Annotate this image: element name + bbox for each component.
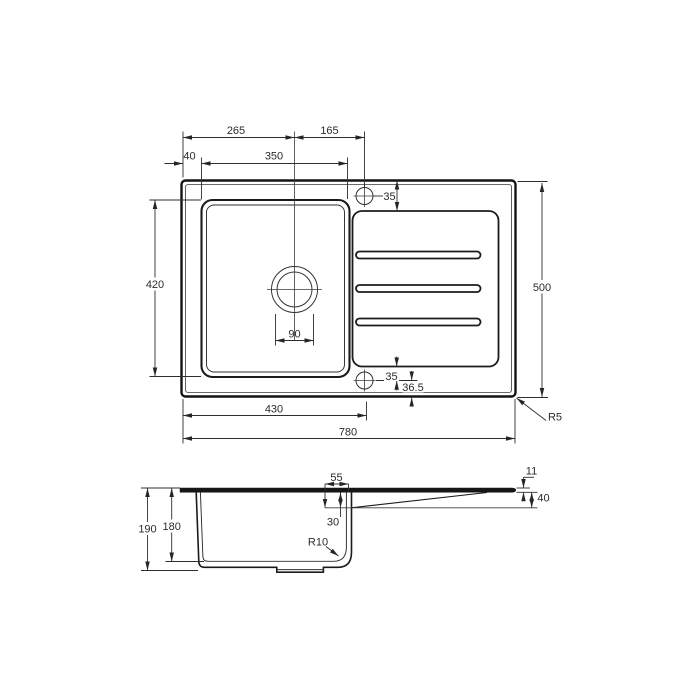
dim-500: 500 (533, 282, 551, 294)
plan-view: 265 165 40 350 35 420 90 35 36.5 430 780… (143, 125, 563, 444)
dim-11: 11 (526, 466, 537, 478)
dim-40-side: 40 (537, 493, 549, 505)
dim-180: 180 (163, 521, 181, 533)
bowl-outline (202, 200, 350, 377)
dim-265: 265 (227, 125, 245, 137)
bowl-section-outer (196, 492, 351, 572)
dim-350: 350 (265, 151, 283, 163)
rim-section-band (180, 488, 516, 492)
dim-35-top: 35 (383, 191, 395, 203)
dim-36-5: 36.5 (402, 382, 423, 394)
bowl-inner-edge (207, 205, 345, 372)
dim-55: 55 (330, 472, 342, 484)
dim-420: 420 (146, 279, 164, 291)
dim-780: 780 (339, 427, 357, 439)
dim-r5: R5 (548, 412, 562, 424)
dim-r10: R10 (308, 537, 328, 549)
dim-90: 90 (288, 329, 300, 341)
bowl-section-inner (200, 492, 346, 561)
sink-technical-drawing: 265 165 40 350 35 420 90 35 36.5 430 780… (0, 0, 700, 700)
drainer-slope (352, 493, 488, 508)
dim-430: 430 (265, 404, 283, 416)
drainer-grooves (356, 252, 481, 326)
tap-hole-bottom (354, 370, 376, 392)
dim-190: 190 (138, 524, 156, 536)
tap-hole-top (354, 185, 376, 207)
dim-35-bottom: 35 (385, 371, 397, 383)
dim-165: 165 (320, 125, 338, 137)
dim-40: 40 (183, 151, 195, 163)
drawing-canvas: 265 165 40 350 35 420 90 35 36.5 430 780… (0, 0, 700, 700)
dim-30: 30 (327, 517, 339, 529)
section-view: 55 30 R10 190 180 11 40 (135, 466, 550, 573)
